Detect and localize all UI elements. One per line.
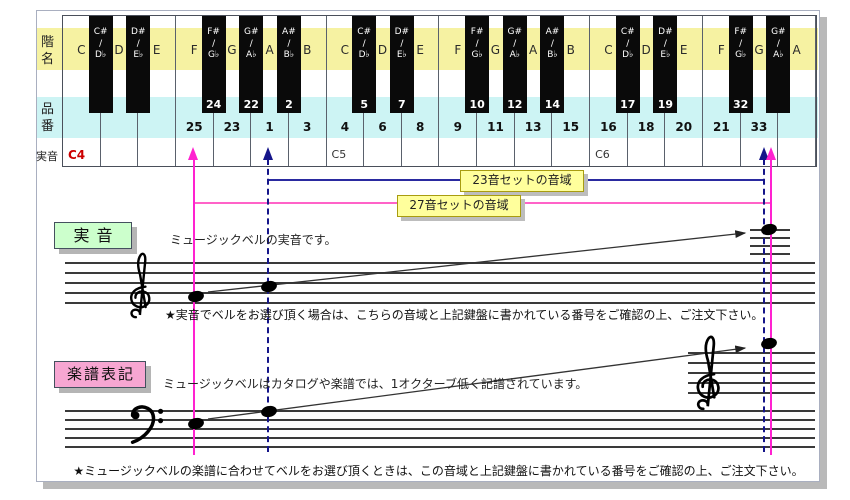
- white-key-number: 18: [628, 120, 665, 134]
- black-key-name: F#/G♭: [729, 16, 753, 62]
- white-key-number: 11: [477, 120, 514, 134]
- black-key-number: 32: [729, 98, 753, 111]
- bass-clef-icon: [124, 402, 168, 444]
- black-key-D#: D#/E♭: [126, 16, 150, 113]
- notation-desc: ミュージックベルはカタログや楽譜では、1オクターブ低く記譜されています。: [163, 375, 587, 392]
- white-key-number: 9: [440, 120, 477, 134]
- black-key-name: C#/D♭: [616, 16, 640, 62]
- white-key-number: 23: [214, 120, 251, 134]
- white-key-number: 16: [590, 120, 627, 134]
- black-key-name: F#/G♭: [465, 16, 489, 62]
- white-key-number: 25: [176, 120, 213, 134]
- staff-line: [65, 292, 815, 294]
- black-key-number: 10: [465, 98, 489, 111]
- black-key-number: 14: [540, 98, 564, 111]
- black-key-D#: D#/E♭19: [653, 16, 677, 113]
- staff-line: [65, 437, 815, 439]
- black-key-name: C#/D♭: [89, 16, 113, 62]
- black-key-number: 24: [202, 98, 226, 111]
- staff-line: [65, 262, 815, 264]
- bell-range-diagram: 階名 品番 実音 CC4DEF25G23A1B3C4C5D6E8F9G11A13…: [0, 0, 850, 500]
- white-key-number: 20: [665, 120, 702, 134]
- black-key-A#: A#/B♭2: [277, 16, 301, 113]
- row-label-pitch-names: 階名: [39, 34, 56, 68]
- range-end-arrow-27-icon: [766, 147, 776, 160]
- guide-line-g6-27set: [770, 159, 772, 455]
- staff-line: [65, 272, 815, 274]
- range-label-27set: 27音セットの音域: [397, 195, 521, 217]
- black-key-name: C#/D♭: [352, 16, 376, 62]
- black-key-C#: C#/D♭5: [352, 16, 376, 113]
- treble-clef-small-icon: [686, 328, 732, 412]
- row-label-actual-sound: 実音: [36, 148, 58, 164]
- black-key-D#: D#/E♭7: [390, 16, 414, 113]
- black-key-F#: F#/G♭24: [202, 16, 226, 113]
- black-key-name: A#/B♭: [540, 16, 564, 62]
- actual-sound-label: 実音: [54, 222, 132, 249]
- row-label-product-numbers: 品番: [39, 101, 56, 135]
- black-key-number: 17: [616, 98, 640, 111]
- black-key-number: 19: [653, 98, 677, 111]
- range-start-arrow-23-icon: [263, 147, 273, 160]
- black-key-C#: C#/D♭17: [616, 16, 640, 113]
- white-key-number: 6: [364, 120, 401, 134]
- white-key-number: 13: [515, 120, 552, 134]
- black-key-number: 5: [352, 98, 376, 111]
- white-key-number: 1: [251, 120, 288, 134]
- black-key-name: D#/E♭: [653, 16, 677, 62]
- black-key-name: G#/A♭: [239, 16, 263, 62]
- black-key-C#: C#/D♭: [89, 16, 113, 113]
- white-key-number: 15: [552, 120, 589, 134]
- staff-line: [65, 428, 815, 430]
- white-key-number: 33: [741, 120, 778, 134]
- black-key-G#: G#/A♭: [766, 16, 790, 113]
- black-key-F#: F#/G♭32: [729, 16, 753, 113]
- black-key-name: F#/G♭: [202, 16, 226, 62]
- staff-line: [65, 419, 815, 421]
- black-key-name: G#/A♭: [503, 16, 527, 62]
- actual-sound-marker-C6: C6: [595, 148, 610, 161]
- black-key-A#: A#/B♭14: [540, 16, 564, 113]
- white-key-number: 21: [703, 120, 740, 134]
- black-key-number: 7: [390, 98, 414, 111]
- black-key-F#: F#/G♭10: [465, 16, 489, 113]
- actual-sound-note-text: ★実音でベルをお選び頂く場合は、こちらの音域と上記鍵盤に書かれている番号をご確認…: [165, 306, 763, 323]
- actual-sound-marker-C4: C4: [68, 148, 85, 162]
- treble-clef-icon: [118, 246, 164, 320]
- white-key-number: 3: [289, 120, 326, 134]
- black-key-number: 22: [239, 98, 263, 111]
- notation-label: 楽譜表記: [54, 361, 146, 388]
- range-label-23set: 23音セットの音域: [460, 170, 584, 192]
- staff-line: [65, 282, 815, 284]
- staff-line: [65, 302, 815, 304]
- black-key-name: A#/B♭: [277, 16, 301, 62]
- black-key-name: D#/E♭: [126, 16, 150, 62]
- black-key-G#: G#/A♭12: [503, 16, 527, 113]
- staff-line: [65, 446, 815, 448]
- black-key-name: D#/E♭: [390, 16, 414, 62]
- black-key-number: 2: [277, 98, 301, 111]
- black-key-name: G#/A♭: [766, 16, 790, 62]
- range-start-arrow-27-icon: [188, 147, 198, 160]
- black-key-G#: G#/A♭22: [239, 16, 263, 113]
- white-key-number: 4: [327, 120, 364, 134]
- black-key-number: 12: [503, 98, 527, 111]
- keyboard: CC4DEF25G23A1B3C4C5D6E8F9G11A13B15C16C6D…: [62, 15, 817, 167]
- actual-sound-desc: ミュージックベルの実音です。: [170, 231, 337, 248]
- actual-sound-marker-C5: C5: [332, 148, 347, 161]
- white-key-number: 8: [402, 120, 439, 134]
- notation-note-text: ★ミュージックベルの楽譜に合わせてベルをお選び頂くときは、この音域と上記鍵盤に書…: [62, 462, 815, 479]
